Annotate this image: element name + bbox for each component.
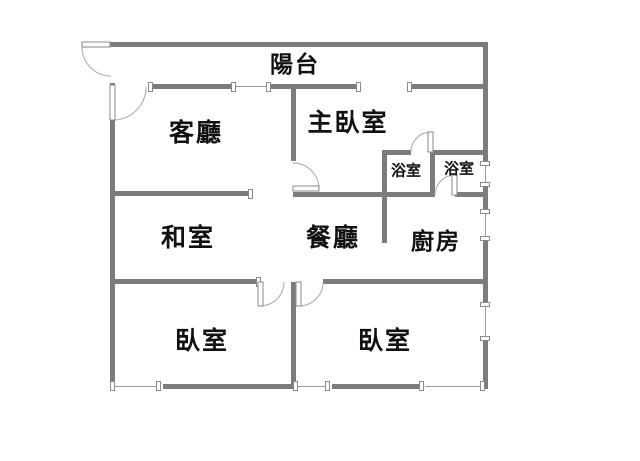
floorplan: 陽台 客廳 主臥室 浴室 浴室 和室 餐廳 廚房 臥室 臥室 [0,0,640,461]
room-label-balcony: 陽台 [270,45,320,79]
bedroom-right-door-leaf [296,282,301,306]
bath1-door-leaf [428,132,433,152]
bedroom-left-door-leaf [258,282,263,306]
living-entry-door-leaf [110,85,115,120]
room-label-bedroom-right: 臥室 [358,321,412,357]
master-bedroom-door-arc [293,163,319,189]
room-label-master: 主臥室 [307,103,388,139]
entry-door-leaf [82,42,110,47]
bedroom-right-door-arc [299,282,323,306]
room-label-bath1: 浴室 [391,160,421,181]
living-entry-door-arc [113,87,146,120]
room-label-bedroom-left: 臥室 [175,321,229,357]
room-label-living: 客廳 [169,113,223,149]
room-label-dining: 餐廳 [306,218,360,254]
room-label-kitchen: 廚房 [411,222,461,256]
room-label-bath2: 浴室 [444,158,474,179]
master-bedroom-door-leaf [293,186,319,191]
bedroom-left-door-arc [260,282,284,306]
entry-door-arc [82,47,111,76]
room-label-tatami: 和室 [161,218,215,254]
